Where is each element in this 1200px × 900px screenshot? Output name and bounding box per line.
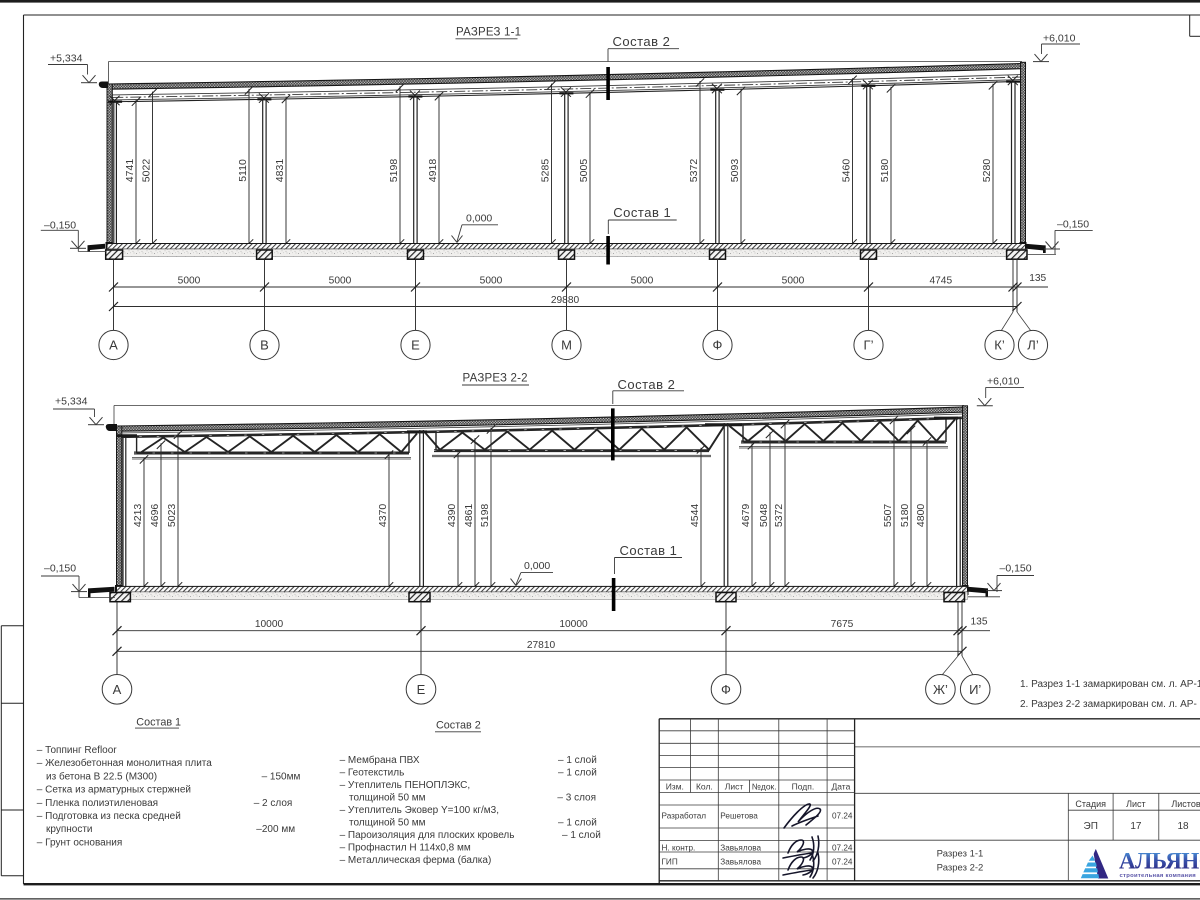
svg-text:Решетова: Решетова [720,812,758,821]
svg-text:– 2 слоя: – 2 слоя [254,798,293,809]
svg-text:– 1 слой: – 1 слой [562,830,601,841]
svg-text:4800: 4800 [915,504,927,528]
svg-text:5198: 5198 [479,504,491,528]
svg-text:Ф: Ф [721,682,731,697]
svg-text:– Металлическая ферма (балка): – Металлическая ферма (балка) [340,854,492,866]
svg-text:Ж’: Ж’ [933,682,948,697]
svg-text:Л’: Л’ [1027,338,1039,353]
svg-text:5198: 5198 [388,159,400,183]
svg-text:–0,150: –0,150 [1057,219,1089,231]
svg-text:4918: 4918 [427,159,439,183]
svg-text:4745: 4745 [929,275,952,286]
svg-text:И’: И’ [969,682,981,697]
svg-text:5000: 5000 [480,275,503,286]
svg-text:5000: 5000 [178,275,201,286]
svg-text:– Утеплитель Эковер Y=100 кг/: – Утеплитель Эковер Y=100 кг/м3, [340,805,499,816]
svg-text:В: В [260,338,269,353]
svg-text:5093: 5093 [729,159,741,183]
svg-text:РАЗРЕЗ 2-2: РАЗРЕЗ 2-2 [463,373,528,385]
svg-text:+6,010: +6,010 [1043,33,1076,45]
svg-text:– Подготовка из песка средней: – Подготовка из песка средней [37,811,181,822]
svg-text:– Топпинг Refloor: – Топпинг Refloor [37,745,117,756]
svg-text:5000: 5000 [631,275,654,286]
svg-text:Разработал: Разработал [662,812,707,821]
svg-text:4696: 4696 [149,504,161,528]
svg-text:7675: 7675 [831,619,854,630]
svg-text:4741: 4741 [124,159,136,183]
svg-text:А: А [113,682,122,697]
svg-text:Дата: Дата [831,782,850,792]
svg-text:Е: Е [411,338,420,353]
svg-text:Разрез 2-2: Разрез 2-2 [937,863,984,874]
svg-text:Завьялова: Завьялова [720,844,761,853]
svg-text:– 1 слой: – 1 слой [558,755,597,766]
svg-text:07.24: 07.24 [832,812,853,821]
svg-text:№док.: №док. [752,782,777,792]
svg-text:Кол.: Кол. [696,782,713,792]
svg-text:Состав 1: Состав 1 [136,717,181,729]
svg-text:толщиной 50 мм: толщиной 50 мм [349,818,426,829]
svg-text:5000: 5000 [782,275,805,286]
svg-text:07.24: 07.24 [832,844,853,853]
svg-text:10000: 10000 [255,619,284,630]
svg-text:–0,150: –0,150 [44,563,76,575]
svg-text:А: А [109,338,118,353]
svg-text:Лист: Лист [725,782,744,792]
svg-text:Листов: Листов [1171,799,1200,809]
svg-text:Завьялова: Завьялова [720,858,761,867]
svg-text:РАЗРЕЗ 1-1: РАЗРЕЗ 1-1 [456,27,521,39]
svg-text:5507: 5507 [882,504,894,528]
svg-text:1. Разрез 1-1 замаркирован см.: 1. Разрез 1-1 замаркирован см. л. АР-19 [1020,679,1200,690]
svg-text:4679: 4679 [740,504,752,528]
svg-text:– 3 слоя: – 3 слоя [557,793,596,804]
svg-text:5285: 5285 [539,159,551,183]
svg-text:– Грунт основания: – Грунт основания [37,837,122,848]
svg-text:– Мембрана ПВХ: – Мембрана ПВХ [340,754,420,766]
svg-text:– Профнастил Н 114х0,8 мм: – Профнастил Н 114х0,8 мм [340,842,471,854]
svg-text:Состав 2: Состав 2 [436,720,481,732]
svg-text:Лист: Лист [1126,799,1146,809]
svg-text:ГИП: ГИП [662,858,678,867]
svg-text:5180: 5180 [899,504,911,528]
svg-text:Е: Е [417,682,426,697]
svg-text:+5,334: +5,334 [55,396,88,408]
svg-text:5048: 5048 [758,504,770,528]
svg-text:5005: 5005 [578,159,590,183]
svg-text:– Пароизоляция для плоских кр: – Пароизоляция для плоских кровель [340,830,515,841]
svg-text:– Пленка полиэтиленовая: – Пленка полиэтиленовая [37,798,158,809]
svg-text:+6,010: +6,010 [987,375,1020,387]
svg-text:М: М [561,338,572,353]
svg-text:4544: 4544 [689,504,701,528]
svg-text:– Сетка из арматурных стержне: – Сетка из арматурных стержней [37,785,191,796]
svg-text:5372: 5372 [773,504,785,528]
svg-text:АЛЬЯНС: АЛЬЯНС [1119,849,1200,874]
svg-text:Состав 2: Состав 2 [613,34,671,49]
svg-text:– Геотекстиль: – Геотекстиль [340,768,405,779]
svg-text:4370: 4370 [377,504,389,528]
svg-text:5180: 5180 [879,159,891,183]
svg-text:+5,334: +5,334 [50,53,83,65]
svg-text:4831: 4831 [274,159,286,183]
svg-text:5023: 5023 [166,504,178,528]
svg-text:–200 мм: –200 мм [256,824,295,835]
svg-text:17: 17 [1130,821,1142,832]
svg-text:– 150мм: – 150мм [262,771,301,782]
svg-text:18: 18 [1177,821,1189,832]
svg-text:Г’: Г’ [864,338,874,353]
svg-text:К’: К’ [994,338,1005,353]
svg-text:толщиной 50 мм: толщиной 50 мм [349,793,426,804]
svg-text:Состав 1: Состав 1 [613,205,671,220]
svg-text:Разрез 1-1: Разрез 1-1 [937,849,984,860]
svg-text:29880: 29880 [551,295,580,306]
svg-text:5110: 5110 [237,159,249,182]
svg-text:строительная компания: строительная компания [1120,873,1197,879]
svg-text:– Железобетонная монолитная: – Железобетонная монолитная плита [37,757,212,769]
svg-text:5000: 5000 [329,275,352,286]
svg-text:Состав 2: Состав 2 [618,377,676,392]
svg-text:Подп.: Подп. [792,782,815,792]
svg-text:135: 135 [1029,273,1046,284]
svg-text:–0,150: –0,150 [44,219,76,231]
svg-text:крупности: крупности [46,824,93,835]
svg-text:5280: 5280 [981,159,993,183]
svg-text:– 1 слой: – 1 слой [558,768,597,779]
svg-text:4390: 4390 [446,504,458,528]
svg-text:Ф: Ф [713,338,723,353]
svg-text:ЭП: ЭП [1084,821,1098,832]
svg-text:0,000: 0,000 [466,213,492,225]
svg-text:4861: 4861 [463,504,475,528]
svg-text:–0,150: –0,150 [1000,563,1032,575]
svg-text:5022: 5022 [140,159,152,183]
svg-text:Изм.: Изм. [666,782,684,792]
svg-text:0,000: 0,000 [524,560,550,572]
svg-text:10000: 10000 [559,619,588,630]
svg-text:из бетона В 22.5 (М300): из бетона В 22.5 (М300) [46,770,157,782]
svg-text:– 1 слой: – 1 слой [558,818,597,829]
svg-text:4213: 4213 [132,504,144,528]
svg-text:27810: 27810 [527,640,556,651]
svg-text:5460: 5460 [840,159,852,183]
svg-text:Стадия: Стадия [1075,799,1106,809]
svg-text:– Утеплитель ПЕНОПЛЭКС,: – Утеплитель ПЕНОПЛЭКС, [340,780,471,791]
svg-text:07.24: 07.24 [832,858,853,867]
svg-text:Состав 1: Состав 1 [620,543,678,558]
svg-text:Н. контр.: Н. контр. [662,844,696,853]
svg-text:2. Разрез 2-2 замаркирован см.: 2. Разрез 2-2 замаркирован см. л. АР- [1020,699,1197,710]
svg-text:5372: 5372 [688,159,700,183]
svg-text:135: 135 [971,617,988,628]
